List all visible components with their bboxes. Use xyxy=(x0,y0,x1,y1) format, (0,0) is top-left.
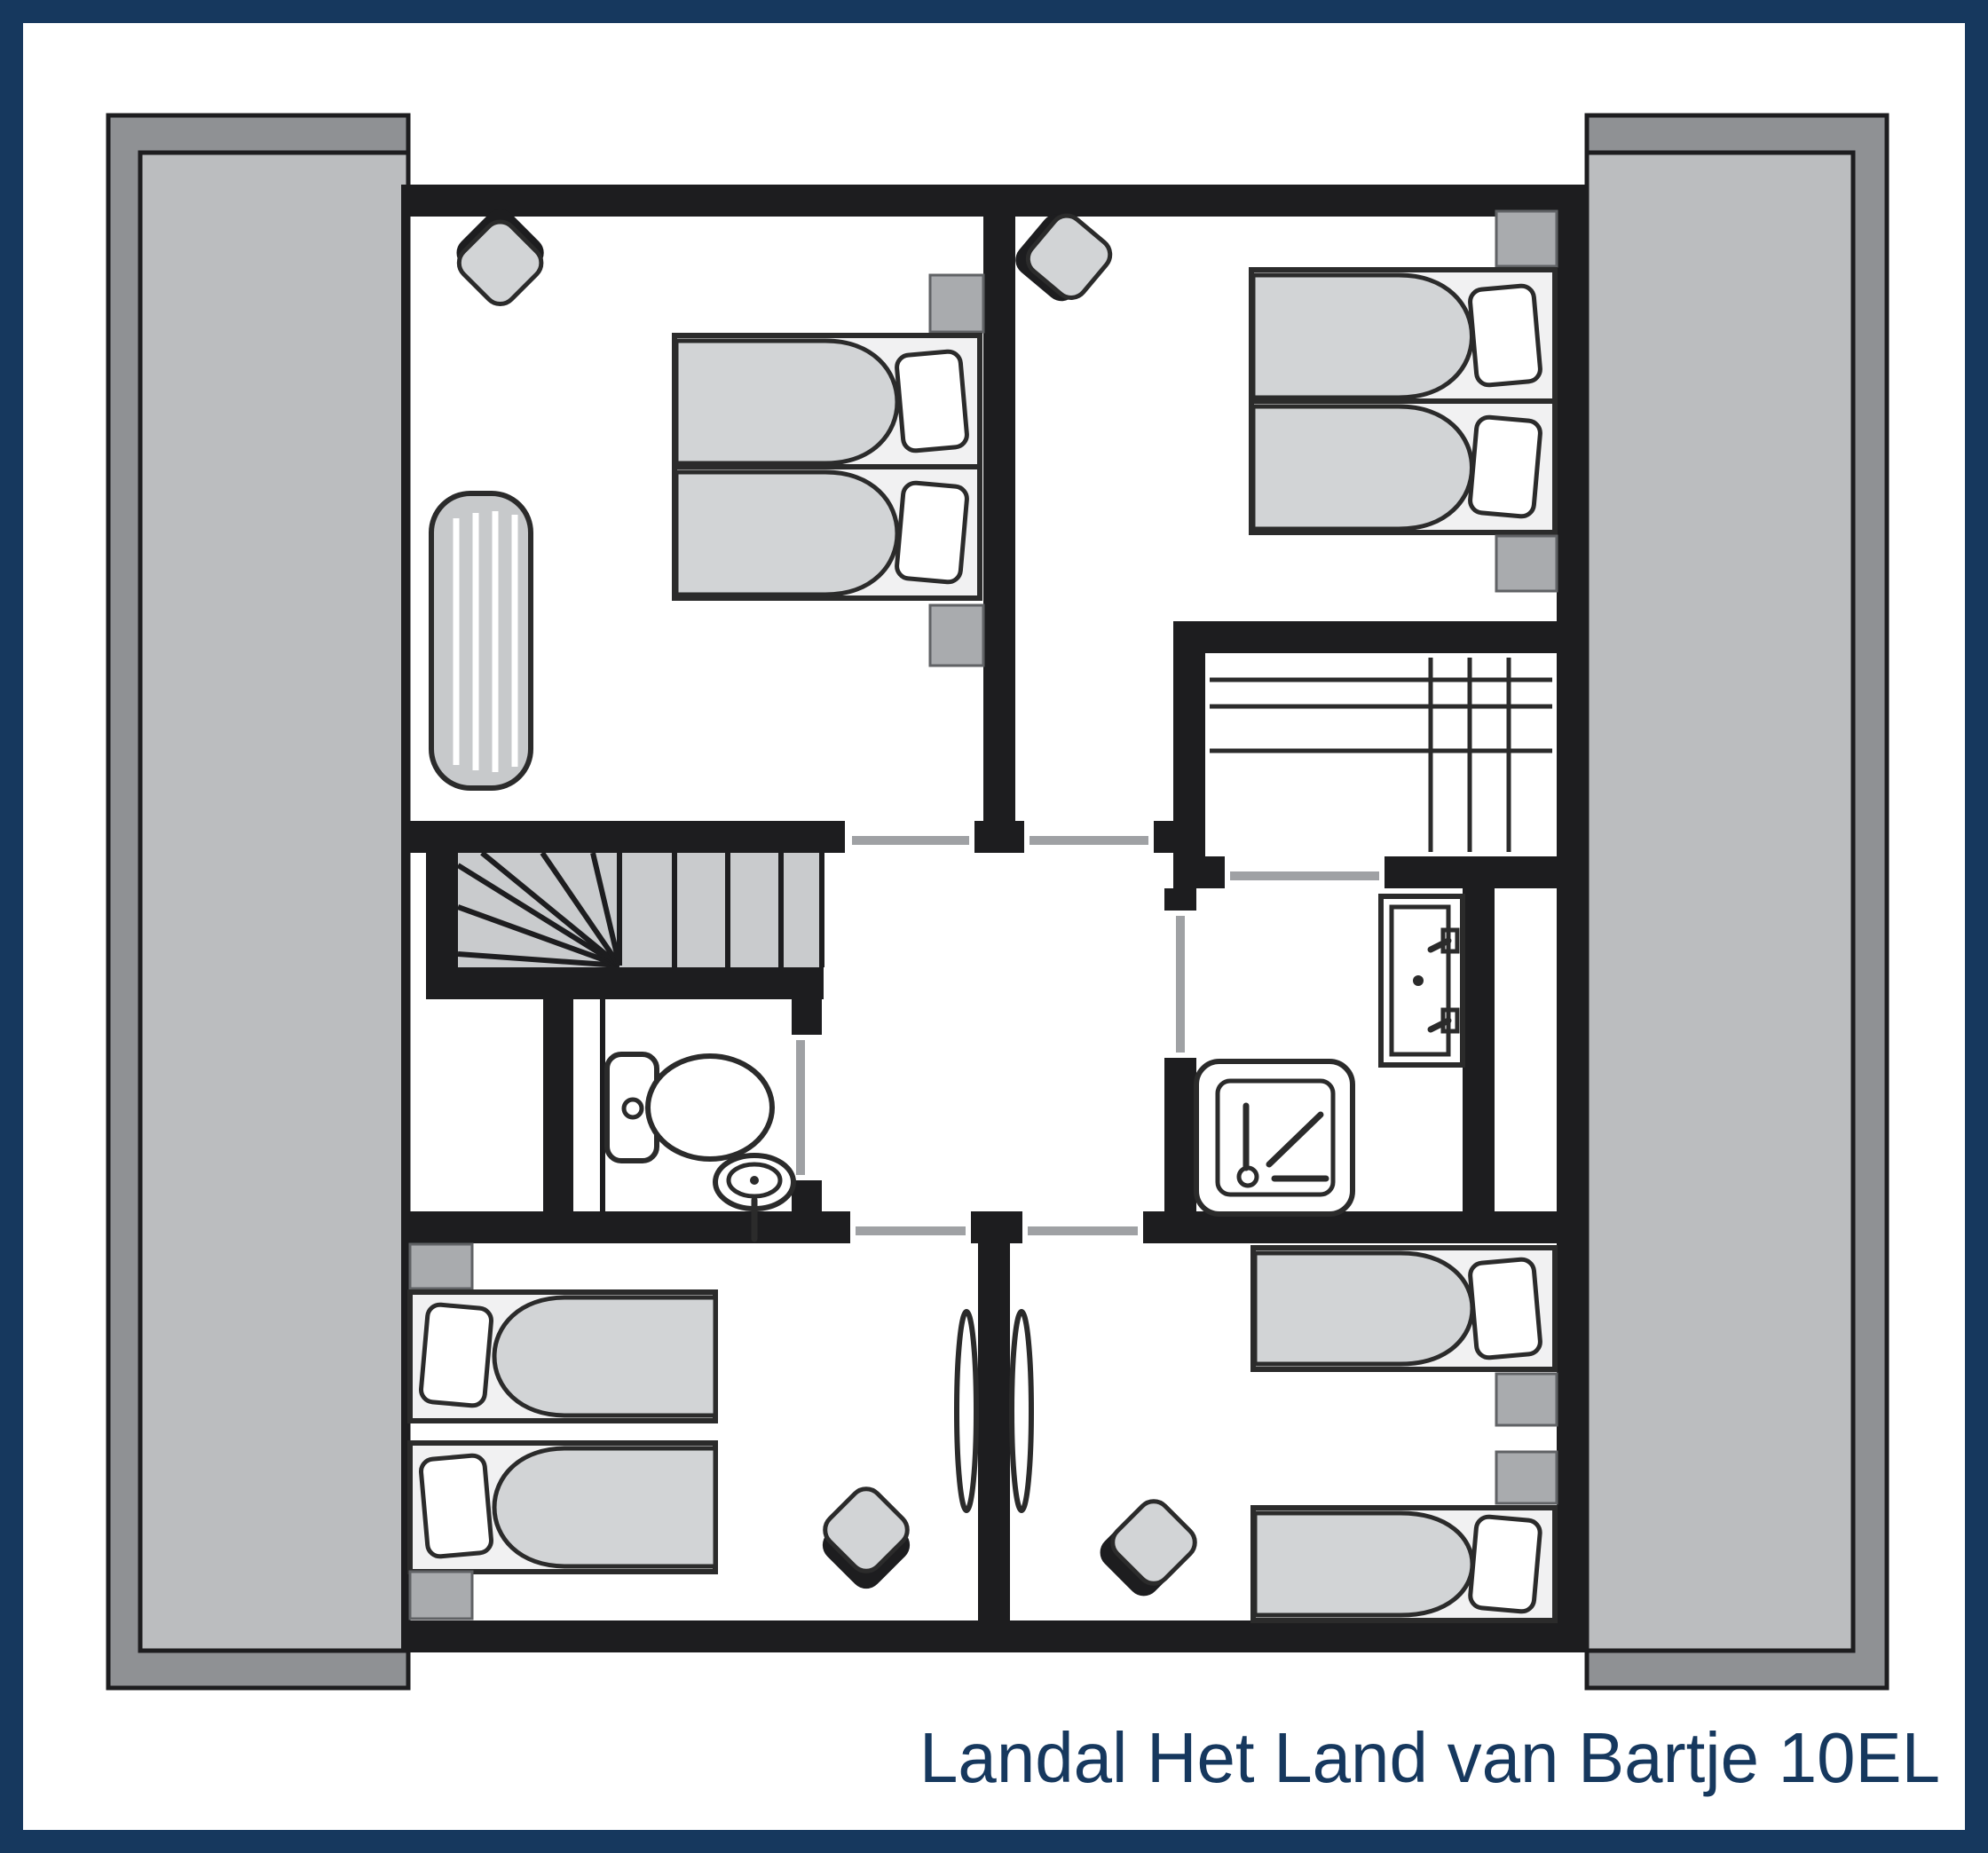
single-bed xyxy=(1251,270,1555,401)
wall-bathroom-right xyxy=(1463,888,1495,1243)
floor-plan: Landal Het Land van Bartje 10EL xyxy=(0,0,1988,1853)
stairs-icon xyxy=(458,853,824,967)
wall-left xyxy=(401,185,410,1652)
roof-slope-right xyxy=(1587,115,1887,1688)
wall-closet-top xyxy=(1173,621,1589,653)
wall-toilet-left xyxy=(543,999,573,1243)
wall-divider-bottom-rooms xyxy=(978,1211,1010,1652)
wall-right xyxy=(1557,185,1589,1652)
floorplan-page: Landal Het Land van Bartje 10EL xyxy=(0,0,1988,1853)
single-bed xyxy=(410,1443,715,1572)
single-bed xyxy=(1253,1248,1555,1369)
nightstand xyxy=(1496,1452,1557,1503)
washbasin-vanity-icon xyxy=(1381,896,1463,1065)
single-bed xyxy=(674,467,980,598)
single-bed xyxy=(1253,1508,1555,1620)
roof-slope-left xyxy=(108,115,408,1688)
nightstand xyxy=(1496,211,1557,266)
single-bed xyxy=(410,1292,715,1421)
wall-divider-top-rooms xyxy=(983,185,1015,853)
wall-stairs-bottom xyxy=(426,967,824,999)
cot-mattress-icon xyxy=(431,493,531,788)
door-leaf-bottom-left xyxy=(957,1312,976,1510)
nightstand xyxy=(410,1244,472,1289)
wall-closet-left xyxy=(1173,621,1205,888)
nightstand xyxy=(410,1572,472,1619)
nightstand xyxy=(930,275,983,332)
door-leaf-bottom-right xyxy=(1012,1312,1031,1510)
toilet-icon xyxy=(607,1054,772,1161)
single-bed xyxy=(1251,401,1555,532)
nightstand xyxy=(930,605,983,666)
plan-title: Landal Het Land van Bartje 10EL xyxy=(919,1718,1940,1797)
nightstand xyxy=(1496,1374,1557,1425)
single-bed xyxy=(674,335,980,467)
nightstand xyxy=(1496,536,1557,591)
shower-icon xyxy=(1196,1061,1353,1214)
